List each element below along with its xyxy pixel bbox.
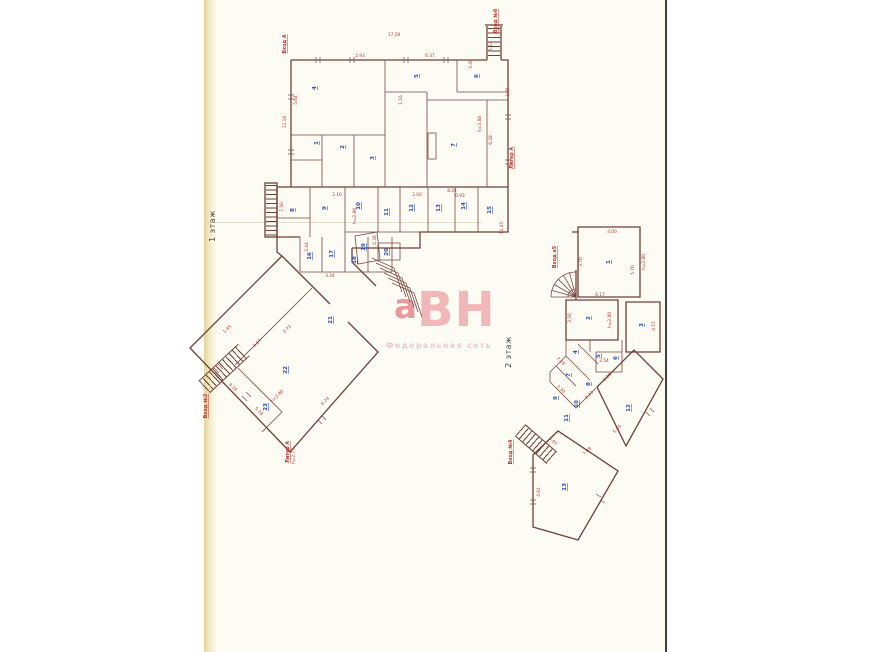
dimension-label: 1.45 bbox=[222, 324, 233, 335]
dimension-label: 0.93 bbox=[455, 193, 465, 199]
floor2-window-ticks bbox=[530, 408, 654, 504]
dimension-label: 7.50 bbox=[279, 202, 285, 212]
dimension-label: 3.40 bbox=[468, 59, 474, 69]
entrance-label: Литер А bbox=[285, 441, 291, 463]
room-number-stamp: 7 bbox=[451, 143, 457, 147]
room-number-stamp: 7 bbox=[566, 373, 572, 377]
room-number-stamps: 1234567891011121314151617181920212223123… bbox=[263, 74, 645, 491]
room-number-stamp: 18 bbox=[352, 256, 358, 264]
left-stair-outline bbox=[265, 183, 277, 237]
dimension-label: 2.93 bbox=[355, 53, 365, 59]
dimension-label: 2.36 bbox=[372, 235, 378, 245]
floor2-plan bbox=[530, 227, 663, 540]
dimension-label: h=2.80 bbox=[270, 388, 286, 404]
room-number-stamp: 19 bbox=[361, 243, 367, 251]
entrance-label: Вход №4 bbox=[508, 439, 514, 464]
room-number-stamp: 12 bbox=[409, 204, 415, 212]
room-number-stamp: 1 bbox=[314, 141, 320, 145]
dimension-label: 11.16 bbox=[282, 116, 288, 129]
room-number-stamp: 16 bbox=[307, 252, 313, 260]
spiral-staircase bbox=[551, 272, 576, 297]
floor2-bottom-room bbox=[533, 431, 618, 540]
dimension-labels: 17.281.1411.165.642.936.373.401.168.246.… bbox=[222, 32, 657, 497]
entrance-label: Литер А bbox=[509, 147, 515, 169]
room-number-stamp: 22 bbox=[283, 366, 289, 374]
room-number-stamp: 8 bbox=[586, 382, 592, 386]
floor1-plan bbox=[190, 25, 511, 452]
entrance-labels: Вход АВход №6Литер АВход №2Литер АВход а… bbox=[203, 8, 558, 464]
dimension-label: 2.10 bbox=[332, 192, 342, 198]
dimension-label: 4.91 bbox=[536, 487, 542, 497]
room-number-stamp: 6 bbox=[613, 356, 619, 360]
room-number-stamp: 13 bbox=[436, 204, 442, 212]
room-number-stamp: 2 bbox=[586, 316, 592, 320]
dimension-label: 11.45 bbox=[499, 222, 505, 235]
room-number-stamp: 10 bbox=[356, 202, 362, 210]
floor1-caption: 1 этаж bbox=[208, 208, 220, 244]
entrance-label: Вход а5 bbox=[552, 246, 558, 268]
dimension-label: 2.72 bbox=[282, 324, 293, 335]
room-number-stamp: 2 bbox=[340, 145, 346, 149]
dimension-label: h=2.77 bbox=[291, 448, 297, 464]
floor1-partitions-upper bbox=[291, 60, 508, 187]
room-number-stamp: 9 bbox=[553, 396, 559, 400]
room-number-stamp: 13 bbox=[562, 483, 568, 491]
room-number-stamp: 5 bbox=[414, 74, 420, 78]
dimension-label: 3.50 bbox=[567, 313, 573, 323]
room-number-stamp: 4 bbox=[573, 350, 579, 354]
room-number-stamp: 4 bbox=[312, 86, 318, 90]
dimension-label: 4.00 bbox=[607, 229, 617, 235]
room-number-stamp: 15 bbox=[487, 206, 493, 214]
entrance-label: Вход №6 bbox=[493, 8, 499, 33]
room-number-stamp: 11 bbox=[384, 208, 390, 216]
floorplan-drawing: 17.281.1411.165.642.936.373.401.168.246.… bbox=[0, 0, 870, 652]
room-number-stamp: 8 bbox=[290, 208, 296, 212]
room-number-stamp: 23 bbox=[263, 403, 269, 411]
room-number-stamp: 12 bbox=[626, 404, 632, 412]
dimension-label: 5.70 bbox=[630, 265, 636, 275]
dimension-label: h=2.80 bbox=[607, 312, 613, 328]
dimension-label: 1.16 bbox=[398, 95, 404, 105]
dimension-label: 2.33 bbox=[584, 390, 595, 401]
dimension-label: 6.07 bbox=[547, 436, 558, 447]
dimension-label: 5.64 bbox=[293, 95, 299, 105]
floor2-large-room bbox=[597, 350, 663, 446]
dimension-label: 5.89 bbox=[612, 424, 623, 435]
dimension-label: h=2.80 bbox=[641, 254, 647, 270]
room-number-stamp: 3 bbox=[370, 156, 376, 160]
dimension-label: 2.02 bbox=[412, 192, 422, 198]
dimension-label: 3.85 bbox=[505, 87, 511, 97]
dimension-label: 6.37 bbox=[425, 53, 435, 59]
room-number-stamp: 9 bbox=[322, 206, 328, 210]
scan-viewport: аВН Федеральная сеть 17.281.1411 bbox=[0, 0, 870, 652]
dimension-label: 3.70 bbox=[578, 257, 584, 267]
dimension-label: 6.17 bbox=[595, 292, 605, 298]
room-number-stamp: 5 bbox=[596, 354, 602, 358]
entrance-label: Вход А bbox=[282, 34, 288, 54]
floor2-caption: 2 этаж bbox=[504, 334, 516, 370]
floor2-upper-rooms bbox=[566, 227, 660, 352]
room-number-stamp: 10 bbox=[574, 400, 580, 408]
floor1-wing-partitions bbox=[235, 288, 312, 432]
dimension-label: 3.44 bbox=[304, 242, 310, 252]
dimension-label: 4.67 bbox=[252, 338, 263, 349]
floor1-wing-walls bbox=[190, 248, 378, 452]
dimension-label: 6.24 bbox=[320, 396, 331, 407]
room-number-stamp: 21 bbox=[328, 316, 334, 324]
entrance-label: Вход №2 bbox=[203, 394, 209, 419]
dimension-label: 6.38 bbox=[488, 135, 494, 145]
room-number-stamp: 17 bbox=[329, 250, 335, 258]
room-number-stamp: 1 bbox=[606, 260, 612, 264]
dimension-label: 4.10 bbox=[227, 382, 238, 393]
exterior-steps-fan bbox=[372, 258, 422, 317]
hall-column bbox=[428, 133, 436, 159]
dimension-label: 1.14 bbox=[488, 41, 494, 51]
room-number-stamp: 11 bbox=[564, 414, 570, 422]
dimension-label: 3.34 bbox=[325, 273, 335, 279]
room-number-stamp: 14 bbox=[461, 202, 467, 210]
room-number-stamp: 20 bbox=[384, 248, 390, 256]
dimension-label: 17.28 bbox=[388, 32, 401, 38]
dimension-label: 1.30 bbox=[555, 384, 566, 395]
room-number-stamp: 6 bbox=[474, 74, 480, 78]
dimension-label: h=3.88 bbox=[477, 116, 483, 132]
dimension-label: 4.15 bbox=[651, 321, 657, 331]
room-number-stamp: 3 bbox=[639, 323, 645, 327]
